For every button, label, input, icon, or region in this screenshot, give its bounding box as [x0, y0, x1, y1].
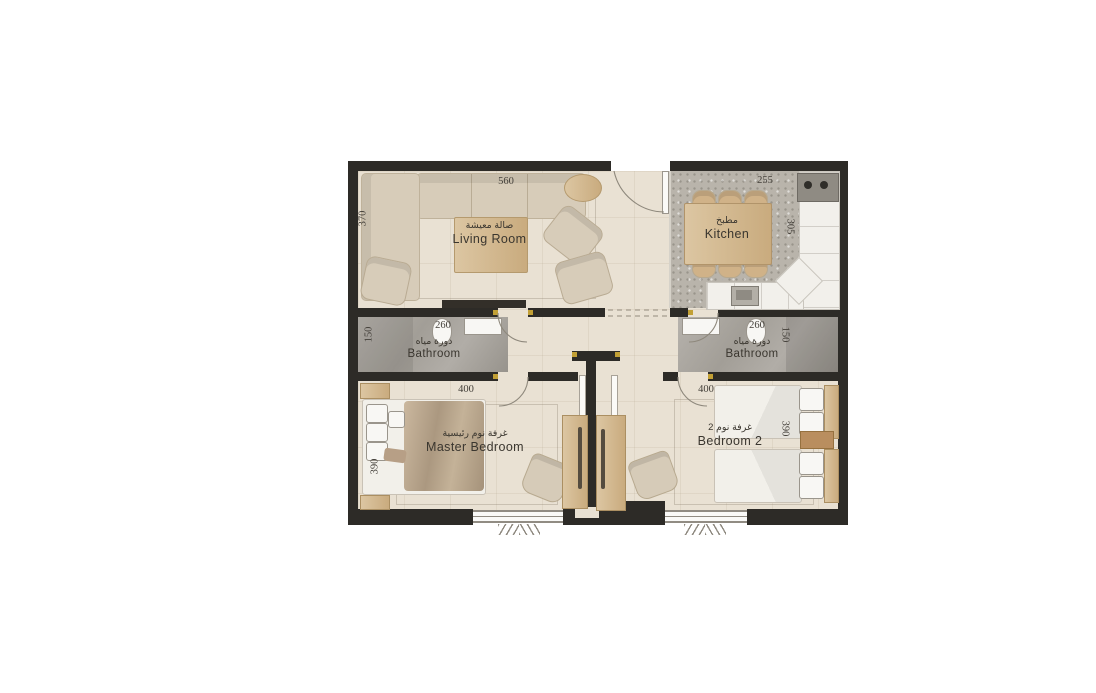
bathroom-1-width-dim: 260 — [428, 320, 458, 331]
bathroom-1-sink — [464, 318, 502, 335]
living-room-label-ar: صالة معيشة — [432, 221, 547, 232]
closet-handle — [578, 427, 582, 489]
living-room-depth-dim: 370 — [358, 206, 369, 232]
wall-living-bath1 — [358, 308, 498, 317]
master-bedroom-label-en: Master Bedroom — [401, 440, 549, 454]
bathroom-2-sink — [682, 318, 720, 335]
nightstand — [360, 495, 390, 510]
door-jamb-accent — [688, 310, 693, 315]
wall-bath2-bedroom2 — [708, 372, 838, 381]
master-bedroom-window — [473, 510, 563, 523]
door-jamb-accent — [528, 310, 533, 315]
master-bedroom-width-dim: 400 — [448, 384, 484, 395]
door-leaf — [611, 375, 618, 419]
exterior-wall-left — [348, 161, 358, 525]
bathroom-2-depth-dim: 150 — [780, 322, 791, 348]
wall-hall-master — [528, 372, 578, 381]
exterior-wall-top-left — [348, 161, 611, 171]
bathroom-1-label: دورة مياه Bathroom — [382, 337, 486, 361]
bathroom-2-width-dim: 260 — [742, 320, 772, 331]
door-jamb-accent — [493, 374, 498, 379]
stove-burner — [820, 181, 828, 189]
living-room-width-dim: 560 — [488, 176, 524, 187]
door-leaf — [579, 375, 586, 419]
kitchen-width-dim: 255 — [747, 175, 783, 186]
bathroom-1-depth-dim: 150 — [364, 322, 375, 348]
bathroom-1-label-en: Bathroom — [382, 348, 486, 361]
exterior-wall-bottom-left — [348, 509, 473, 525]
armchair — [359, 255, 413, 308]
bedroom-2-label-en: Bedroom 2 — [678, 434, 782, 448]
entry-door-leaf — [662, 171, 669, 214]
door-jamb-accent — [615, 352, 620, 357]
bedroom-2-window — [665, 510, 747, 523]
kitchen-depth-dim: 305 — [785, 212, 796, 242]
side-table-round — [564, 174, 602, 202]
master-bedroom-label-ar: غرفة نوم رئيسية — [401, 429, 549, 440]
stove — [797, 173, 839, 202]
pillow — [799, 476, 824, 499]
bedroom-2-label-ar: غرفة نوم 2 — [678, 423, 782, 434]
bed-headboard — [824, 449, 839, 503]
hall-closet-left — [562, 415, 588, 509]
pillow — [799, 452, 824, 475]
master-bedroom-depth-dim: 390 — [370, 454, 381, 480]
pillow — [366, 423, 388, 442]
closet-handle — [601, 429, 605, 489]
pillow — [388, 411, 405, 428]
door-jamb-accent — [708, 374, 713, 379]
wall-kitchen-bath2-left — [670, 308, 688, 317]
kitchen-label-en: Kitchen — [684, 227, 770, 241]
wall-hall-top — [528, 308, 605, 317]
window-hatch-right — [684, 524, 726, 535]
tv-console — [442, 300, 526, 308]
kitchen-label: مطبخ Kitchen — [684, 216, 770, 241]
exterior-wall-top-right — [670, 161, 848, 171]
pillow — [366, 404, 388, 423]
kitchen-sink-basin — [736, 290, 752, 300]
master-bedroom-label: غرفة نوم رئيسية Master Bedroom — [401, 429, 549, 454]
hall-wall-cap — [572, 351, 620, 361]
bathroom-1-label-ar: دورة مياه — [382, 337, 486, 348]
kitchen-label-ar: مطبخ — [684, 216, 770, 227]
bathroom-2-label-en: Bathroom — [700, 348, 804, 361]
living-room-label-en: Living Room — [432, 232, 547, 246]
bedroom-2-label: غرفة نوم 2 Bedroom 2 — [678, 423, 782, 448]
door-jamb-accent — [572, 352, 577, 357]
single-bed-duvet — [714, 449, 802, 503]
bedroom-2-depth-dim: 390 — [780, 416, 791, 442]
window-hatch-left — [498, 524, 540, 535]
bedroom-2-width-dim: 400 — [688, 384, 724, 395]
floor-plan-page: صالة معيشة Living Room مطبخ Kitchen دورة… — [0, 0, 1096, 693]
stove-burner — [804, 181, 812, 189]
wall-bath1-master — [358, 372, 498, 381]
exterior-wall-bottom-right — [747, 509, 848, 525]
pillow — [799, 388, 824, 411]
nightstand — [800, 431, 834, 449]
wall-hall-bedroom2 — [663, 372, 678, 381]
floor-plan: صالة معيشة Living Room مطبخ Kitchen دورة… — [348, 161, 848, 525]
kitchen-floor-edge — [669, 171, 671, 308]
living-room-label: صالة معيشة Living Room — [432, 221, 547, 246]
door-jamb-accent — [493, 310, 498, 315]
nightstand — [360, 383, 390, 399]
